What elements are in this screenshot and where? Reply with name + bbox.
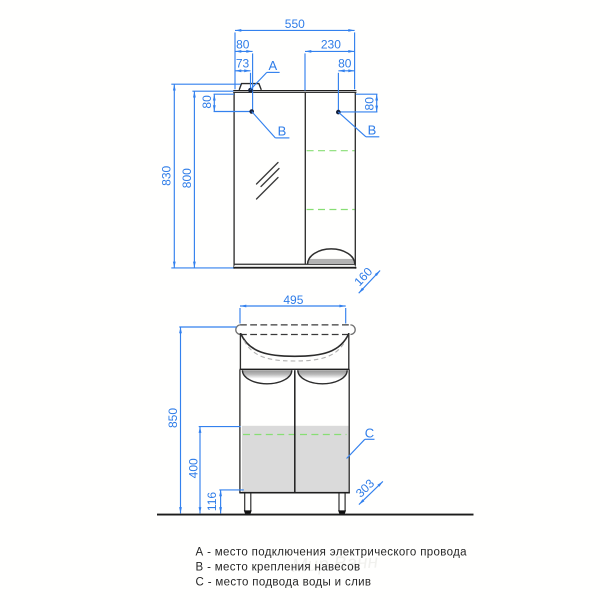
svg-text:230: 230: [321, 37, 341, 51]
svg-text:73: 73: [236, 57, 250, 71]
svg-text:B: B: [278, 124, 287, 139]
svg-text:400: 400: [186, 458, 200, 478]
svg-text:116: 116: [205, 492, 219, 511]
svg-text:550: 550: [285, 17, 305, 31]
svg-text:80: 80: [338, 57, 352, 71]
svg-text:80: 80: [363, 97, 377, 111]
svg-text:80: 80: [200, 95, 214, 109]
svg-text:850: 850: [166, 408, 180, 428]
svg-text:А - место подключения электрич: А - место подключения электрического про…: [196, 547, 468, 559]
svg-text:830: 830: [159, 165, 173, 185]
svg-text:C: C: [365, 426, 374, 441]
svg-text:B: B: [368, 123, 377, 138]
svg-text:A: A: [268, 58, 277, 73]
svg-text:С - место подвода воды и слив: С - место подвода воды и слив: [196, 577, 372, 589]
svg-text:800: 800: [180, 168, 194, 188]
svg-text:80: 80: [236, 37, 250, 51]
svg-text:495: 495: [283, 293, 303, 307]
svg-text:В - место крепления навесов: В - место крепления навесов: [196, 562, 361, 574]
